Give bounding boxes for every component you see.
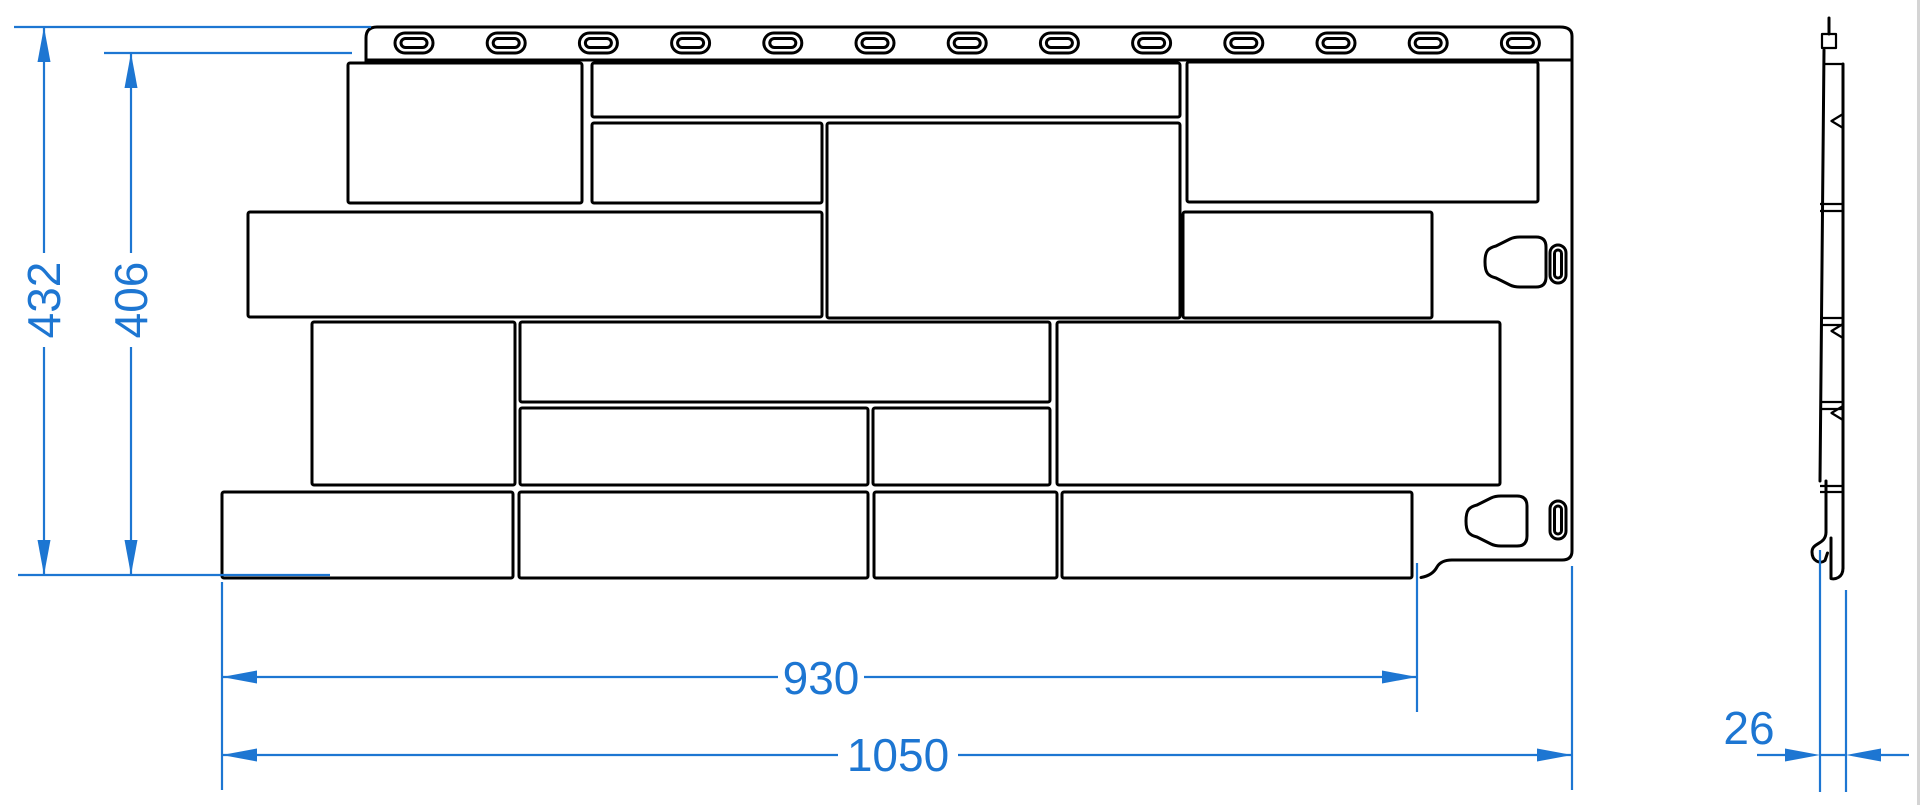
nail-slot-inner xyxy=(1139,39,1165,48)
arrowhead-1050-right xyxy=(1537,749,1572,762)
dim-406: 406 xyxy=(105,53,157,575)
stone-block xyxy=(1187,62,1538,202)
arrowhead-432-top xyxy=(38,27,51,62)
nail-slot-inner xyxy=(1231,39,1257,48)
stone-block xyxy=(519,492,868,578)
drawing-sheet: 432 406 930 1050 26 xyxy=(0,0,1920,805)
stone-block xyxy=(874,492,1057,578)
side-face-line xyxy=(1820,50,1824,481)
arrowhead-930-right xyxy=(1382,671,1417,684)
nail-slot-inner xyxy=(493,39,519,48)
stone-block xyxy=(592,63,1180,117)
nail-slot-inner xyxy=(770,39,796,48)
arrowhead-26-right xyxy=(1846,749,1881,762)
dim-label-thickness: 26 xyxy=(1723,702,1774,754)
arrowhead-26-left xyxy=(1785,749,1820,762)
stone-block xyxy=(1062,492,1412,578)
nail-slot-inner xyxy=(1046,39,1072,48)
side-top-hook xyxy=(1822,34,1836,48)
clip-slot-inner xyxy=(1555,250,1562,278)
front-view xyxy=(222,27,1572,578)
stone-block xyxy=(592,123,822,203)
dim-432: 432 xyxy=(18,27,70,575)
nail-slot-inner xyxy=(1415,39,1441,48)
stone-block xyxy=(248,212,822,317)
stone-block xyxy=(1183,212,1432,318)
nail-slot-inner xyxy=(401,39,427,48)
arrowhead-406-top xyxy=(125,53,138,88)
stone-block xyxy=(222,492,513,578)
dim-1050: 1050 xyxy=(222,729,1572,781)
stone-block xyxy=(1057,322,1500,485)
side-lock-notches xyxy=(1832,114,1844,420)
nail-slot-inner xyxy=(1323,39,1349,48)
stone-block xyxy=(873,408,1050,485)
arrowhead-930-left xyxy=(222,671,257,684)
dim-label-overall-width: 1050 xyxy=(847,729,949,781)
dim-label-overall-height: 432 xyxy=(18,262,70,339)
nail-slot-inner xyxy=(1507,39,1533,48)
stone-block xyxy=(520,408,868,485)
nail-slot-inner xyxy=(585,39,611,48)
arrowhead-432-bottom xyxy=(38,540,51,575)
side-view xyxy=(1812,18,1843,579)
dim-label-visible-height: 406 xyxy=(105,262,157,339)
side-lock-notch-icon xyxy=(1832,114,1844,128)
clip-slot-inner xyxy=(1555,506,1562,534)
drawing-canvas: 432 406 930 1050 26 xyxy=(0,0,1920,805)
stone-block-field xyxy=(222,62,1538,578)
stone-block xyxy=(520,322,1050,402)
stone-block xyxy=(312,322,515,485)
stone-block xyxy=(827,123,1180,318)
arrowhead-1050-left xyxy=(222,749,257,762)
arrowhead-406-bottom xyxy=(125,540,138,575)
nail-slot-inner xyxy=(678,39,704,48)
nail-slot-inner xyxy=(954,39,980,48)
side-bottom-lip xyxy=(1831,538,1843,579)
dim-930: 930 xyxy=(222,652,1417,704)
stone-block xyxy=(348,63,582,203)
dim-26: 26 xyxy=(1723,702,1909,762)
dim-label-stone-width: 930 xyxy=(783,652,860,704)
nail-slot-inner xyxy=(862,39,888,48)
